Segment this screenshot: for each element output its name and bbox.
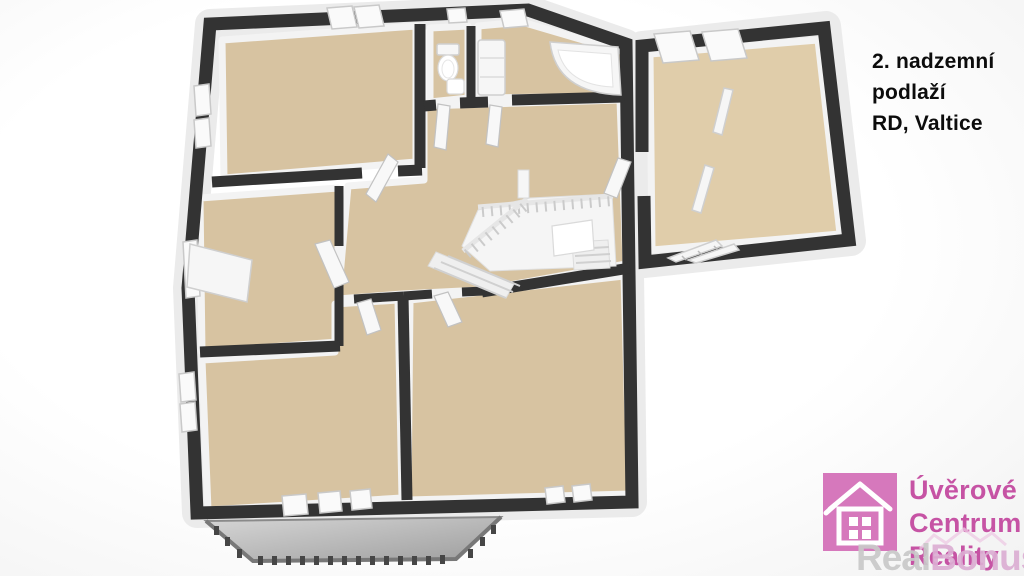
balcony	[206, 517, 501, 565]
wall-hall-south-a	[354, 296, 404, 299]
balcony-door-2	[318, 491, 342, 513]
balcony-door-3	[350, 489, 372, 510]
stair-newel-post	[518, 170, 529, 198]
wall-bedroom-nw-south-b	[398, 170, 422, 171]
plan-title: 2. nadzemní podlaží RD, Valtice	[872, 46, 994, 139]
balcony-door-1	[282, 494, 308, 516]
watermark-real: Real	[856, 537, 930, 576]
plan-title-line-2: podlaží	[872, 77, 994, 108]
window-sw-left-2	[180, 402, 197, 432]
window-sw-left-1	[179, 372, 196, 402]
window-se-bottom-1	[545, 486, 565, 504]
wc-sink-fixture	[447, 79, 464, 94]
floor-attic-room	[650, 40, 840, 250]
stair-glass-panel	[552, 220, 594, 256]
brand-name-line-1: Úvěrové	[909, 474, 1021, 507]
wall-bottom-rooms-divider	[403, 296, 407, 500]
window-top-1	[327, 6, 357, 29]
window-top-2	[354, 5, 384, 28]
window-bath-top	[500, 9, 528, 28]
wall-bedroom-w-south	[200, 346, 340, 352]
toilet-tank	[437, 44, 459, 55]
window-nw-left-2	[194, 118, 211, 148]
window-wc-top	[447, 8, 467, 23]
balcony-slab	[206, 517, 501, 561]
watermark-bonus: Bonus	[930, 537, 1024, 576]
skylight-window-1	[654, 31, 699, 63]
skylight-window-2	[702, 29, 747, 61]
window-se-bottom-2	[572, 484, 592, 502]
bath-vanity	[478, 40, 505, 95]
screenshot-root: 2. nadzemní podlaží RD, Valtice Úvěrové …	[0, 0, 1024, 576]
plan-title-line-3: RD, Valtice	[872, 108, 994, 139]
plan-title-line-1: 2. nadzemní	[872, 46, 994, 77]
window-nw-left-1	[194, 84, 211, 116]
watermark: RealBonus.cz	[856, 539, 1024, 576]
